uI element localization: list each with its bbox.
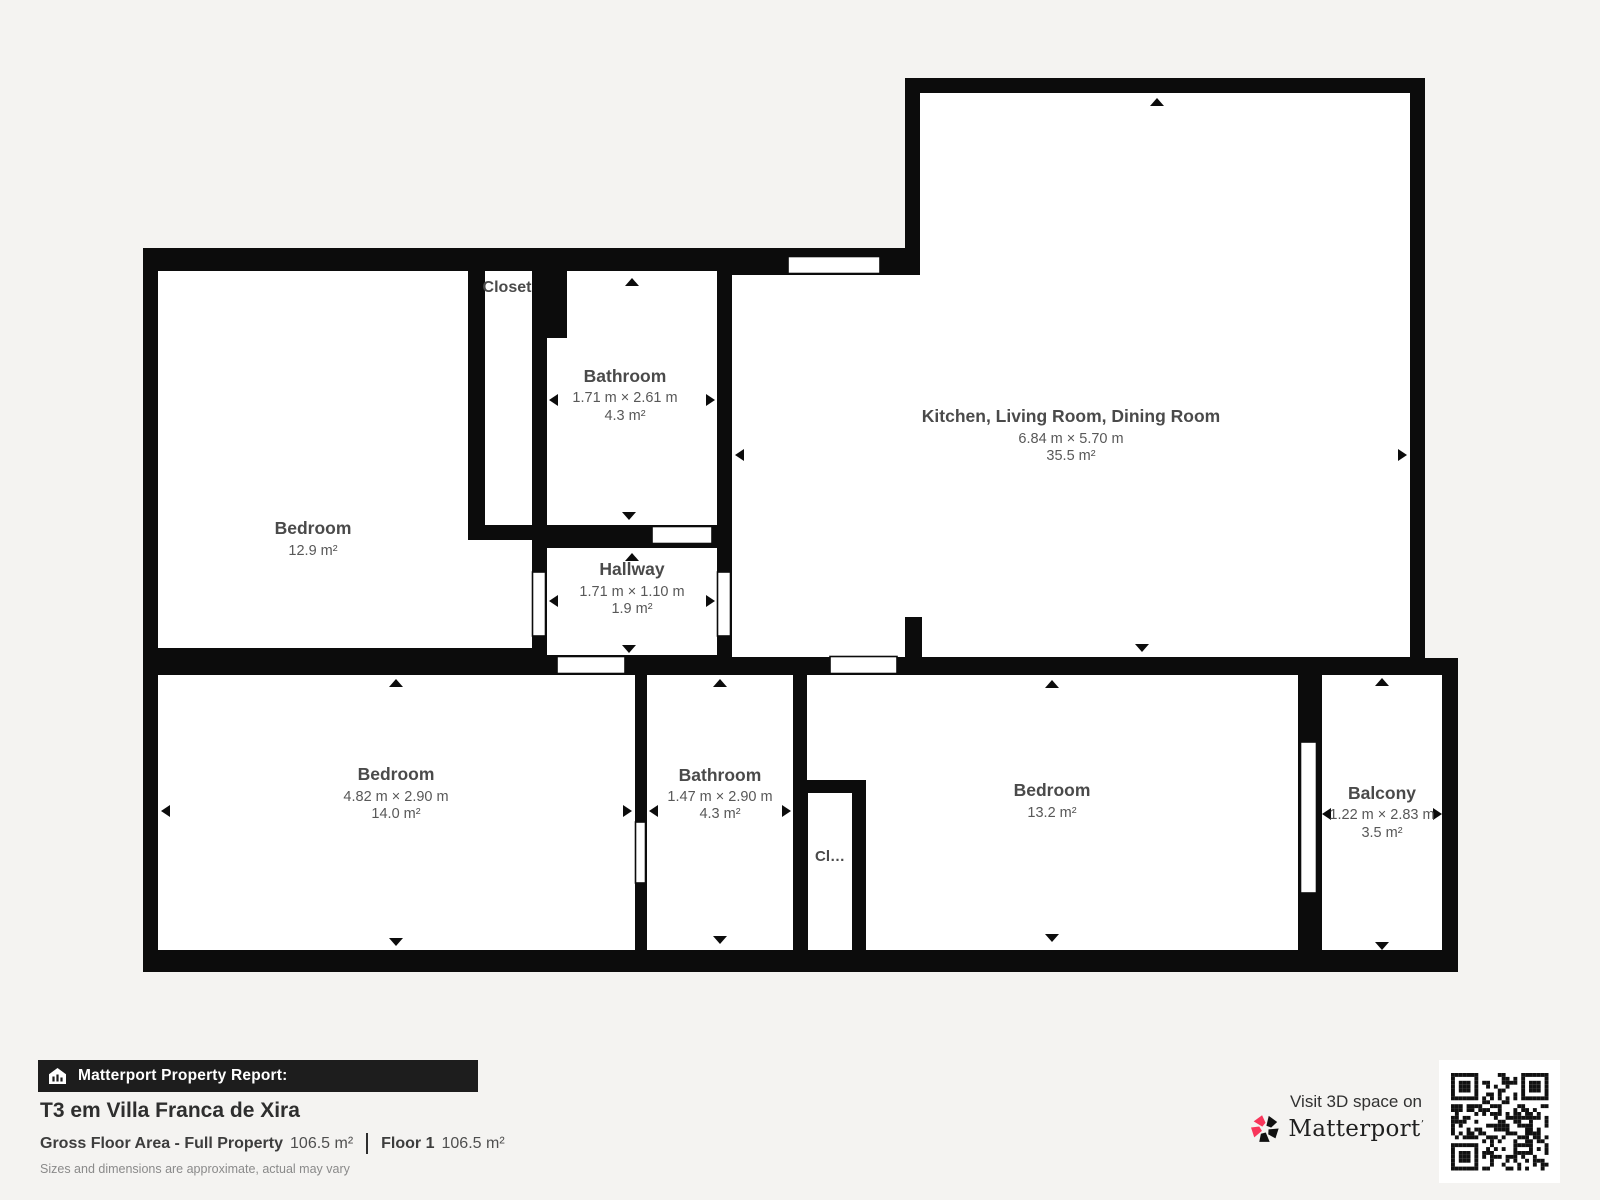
report-header-bar: Matterport Property Report: — [38, 1060, 478, 1092]
dims-bathroom-bottom: 1.47 m × 2.90 m — [667, 789, 772, 805]
label-closet-bottom: Cl… — [815, 848, 845, 865]
dims-bedroom-bottom-left: 4.82 m × 2.90 m — [343, 789, 448, 805]
matterport-logo: Matterportʼ — [1240, 1114, 1424, 1144]
area-bedroom-bottom-right: 13.2 m² — [1027, 805, 1076, 821]
disclaimer-text: Sizes and dimensions are approximate, ac… — [40, 1162, 350, 1176]
area-kitchen-living-dining: 35.5 m² — [1046, 448, 1095, 464]
window-kitchen-top-left — [788, 257, 880, 274]
visit-3d-label: Visit 3D space on — [1240, 1092, 1422, 1112]
door-kitchen-bottom — [830, 657, 897, 674]
area-hallway: 1.9 m² — [611, 601, 652, 617]
floor-value: 106.5 m² — [442, 1135, 505, 1153]
floor-label: Floor 1 — [381, 1135, 434, 1153]
area-bathroom-bottom: 4.3 m² — [699, 806, 740, 822]
label-balcony: Balcony — [1348, 783, 1416, 803]
property-title: T3 em Villa Franca de Xira — [40, 1099, 300, 1123]
dims-bathroom-top: 1.71 m × 2.61 m — [572, 390, 677, 406]
room-closet-top-floor — [485, 271, 532, 525]
room-kitchen-living-dining-floor — [732, 93, 1410, 657]
door-bathroom-top — [652, 527, 712, 544]
dims-kitchen-living-dining: 6.84 m × 5.70 m — [1018, 431, 1123, 447]
report-bar-label: Matterport Property Report: — [78, 1067, 288, 1085]
matterport-pinwheel-icon — [1250, 1114, 1280, 1144]
floor-area-info-row: Gross Floor Area - Full Property 106.5 m… — [40, 1133, 505, 1154]
door-hallway-bottom — [557, 657, 625, 674]
qr-code — [1439, 1060, 1560, 1183]
label-bedroom-bottom-left: Bedroom — [358, 764, 435, 784]
area-bathroom-top: 4.3 m² — [604, 408, 645, 424]
area-bedroom-bottom-left: 14.0 m² — [371, 806, 420, 822]
floor-plan: Bedroom 12.9 m² Closet Bathroom 1.71 m ×… — [0, 0, 1600, 1010]
label-closet-top: Closet — [483, 279, 533, 296]
label-bathroom-bottom: Bathroom — [679, 765, 762, 785]
label-bedroom-top-left: Bedroom — [275, 518, 352, 538]
dims-balcony: 1.22 m × 2.83 m — [1329, 807, 1434, 823]
dims-hallway: 1.71 m × 1.10 m — [579, 584, 684, 600]
room-closet-bottom-floor — [808, 793, 852, 950]
label-bathroom-top: Bathroom — [584, 366, 667, 386]
brand-mark: ʼ — [1421, 1119, 1424, 1130]
divider — [366, 1133, 368, 1154]
area-balcony: 3.5 m² — [1361, 825, 1402, 841]
door-bedroom-bathroom-bottom — [636, 822, 646, 883]
label-hallway: Hallway — [599, 559, 664, 579]
door-hallway-left — [533, 572, 546, 636]
gross-floor-area-value: 106.5 m² — [290, 1135, 353, 1153]
window-balcony — [1301, 742, 1317, 893]
area-bedroom-top-left: 12.9 m² — [288, 543, 337, 559]
house-icon — [49, 1068, 66, 1084]
label-bedroom-bottom-right: Bedroom — [1014, 780, 1091, 800]
matterport-wordmark: Matterportʼ — [1288, 1116, 1424, 1142]
matterport-floorplan-report: Bedroom 12.9 m² Closet Bathroom 1.71 m ×… — [0, 0, 1600, 1200]
label-kitchen-living-dining: Kitchen, Living Room, Dining Room — [922, 406, 1220, 426]
door-hallway-right — [718, 572, 731, 636]
gross-floor-area-label: Gross Floor Area - Full Property — [40, 1135, 283, 1153]
